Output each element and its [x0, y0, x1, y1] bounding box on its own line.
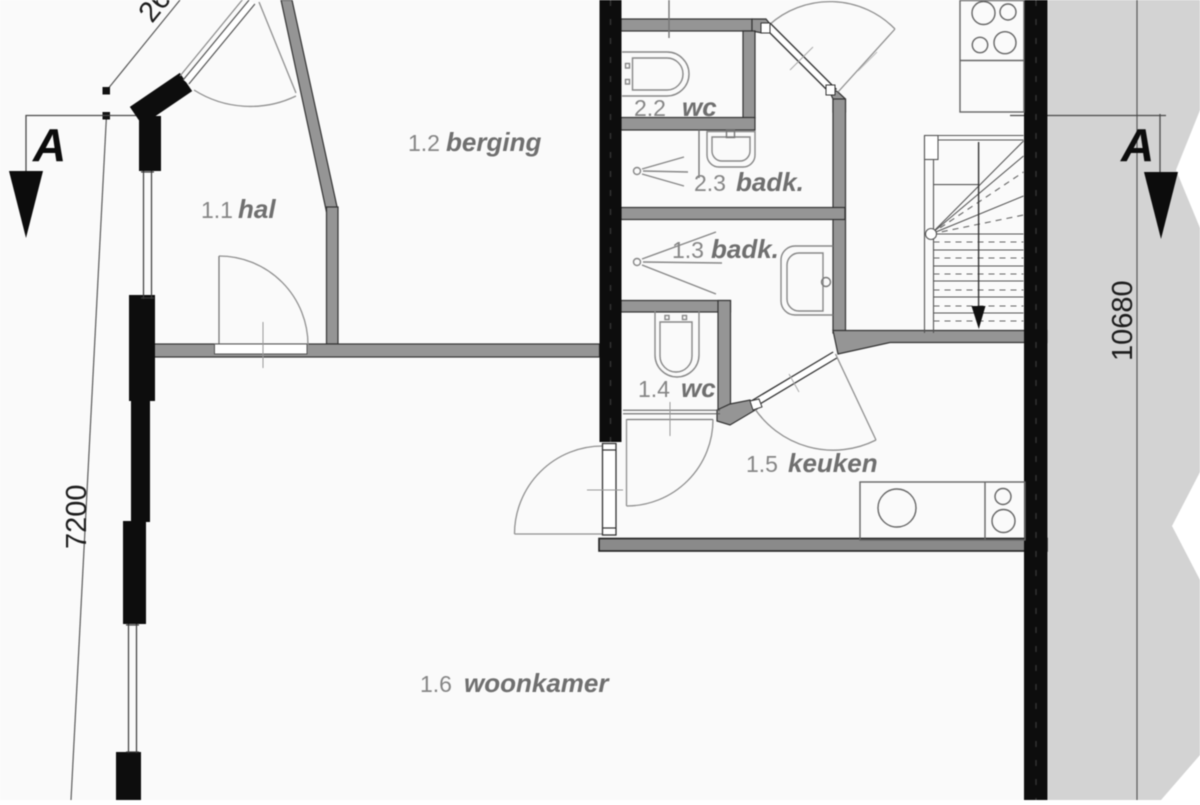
svg-text:woonkamer: woonkamer	[464, 668, 610, 698]
svg-text:wc: wc	[682, 92, 717, 122]
svg-text:1.6: 1.6	[420, 671, 452, 697]
svg-text:A: A	[1120, 119, 1154, 171]
svg-text:2.2: 2.2	[634, 95, 666, 121]
svg-text:keuken: keuken	[788, 448, 878, 478]
svg-text:badk.: badk.	[736, 167, 804, 197]
svg-text:hal: hal	[238, 194, 276, 224]
svg-text:badk.: badk.	[711, 234, 779, 264]
svg-text:2.3: 2.3	[694, 170, 726, 196]
svg-text:1.2: 1.2	[408, 130, 440, 156]
svg-text:1.4: 1.4	[638, 376, 670, 402]
svg-text:1.3: 1.3	[672, 237, 704, 263]
svg-text:berging: berging	[446, 127, 541, 157]
svg-text:1.1: 1.1	[201, 197, 233, 223]
svg-text:7200: 7200	[61, 484, 93, 549]
svg-text:1.5: 1.5	[746, 451, 778, 477]
svg-text:10680: 10680	[1107, 280, 1139, 361]
svg-text:A: A	[32, 119, 66, 171]
svg-text:wc: wc	[681, 373, 716, 403]
